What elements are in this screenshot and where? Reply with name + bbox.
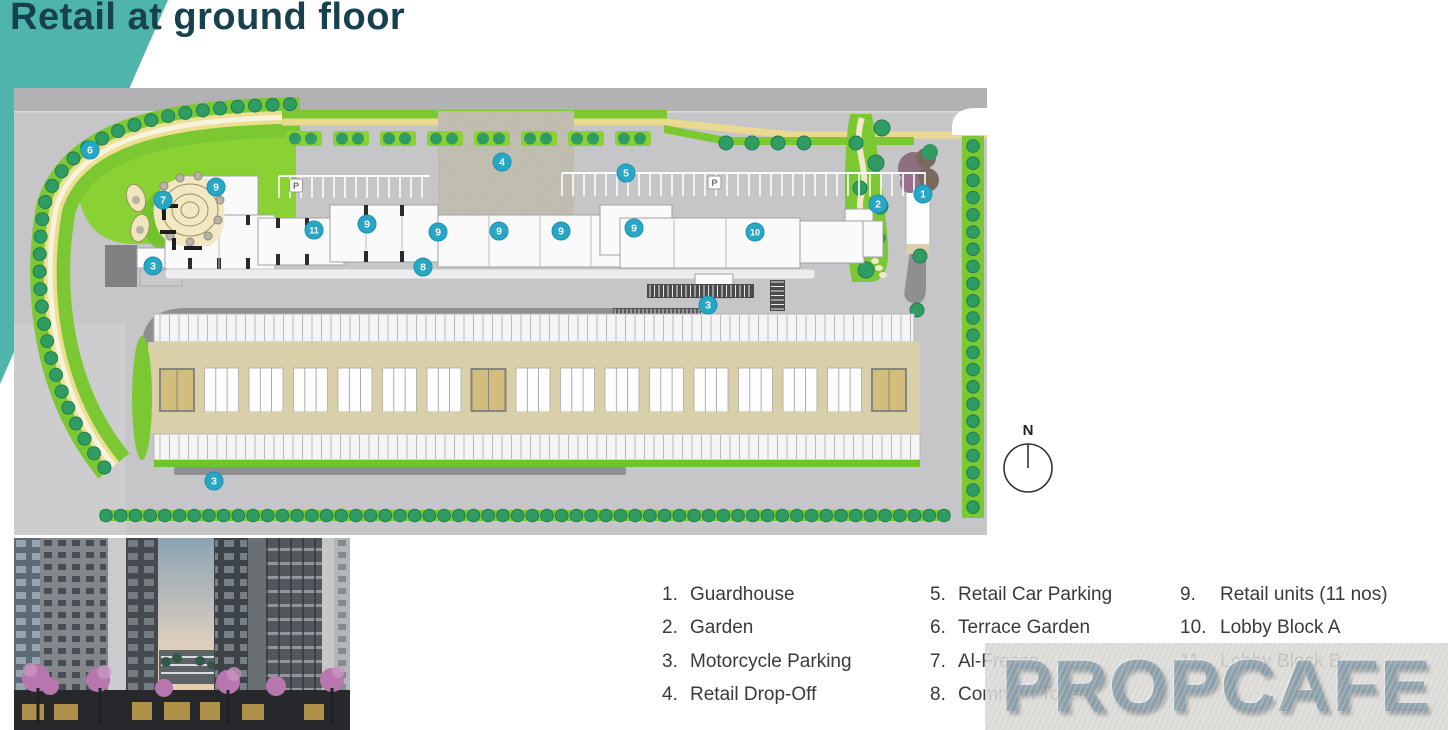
propcafe-watermark: PROPCAFE: [985, 643, 1448, 730]
plan-marker-number: 6: [87, 145, 93, 157]
legend-item-label: Retail units (11 nos): [1220, 584, 1388, 606]
legend-item-label: Guardhouse: [690, 584, 795, 606]
parking-structure: [132, 308, 920, 475]
plan-marker-9: 9: [552, 222, 570, 240]
legend-item: 5.Retail Car Parking: [930, 578, 1112, 612]
plan-marker-10: 10: [746, 223, 764, 241]
legend-item-label: Retail Car Parking: [958, 584, 1112, 606]
plan-marker-number: 10: [750, 228, 760, 238]
legend-item: 6.Terrace Garden: [930, 612, 1112, 646]
plan-marker-number: 9: [496, 226, 502, 238]
page-title: Retail at ground floor: [10, 0, 405, 39]
plan-marker-2: 2: [869, 195, 887, 213]
plan-marker-3: 3: [205, 472, 223, 490]
plan-marker-number: 11: [309, 226, 319, 236]
plan-marker-9: 9: [625, 219, 643, 237]
legend-item-number: 9.: [1180, 584, 1220, 606]
plan-marker-6: 6: [81, 141, 99, 159]
legend-item-label: Motorcycle Parking: [690, 651, 852, 673]
legend-item: 3.Motorcycle Parking: [662, 645, 852, 679]
plan-marker-9: 9: [429, 223, 447, 241]
legend-item-number: 1.: [662, 584, 690, 606]
plan-marker-number: 9: [364, 219, 370, 231]
legend-item: 10.Lobby Block A: [1180, 612, 1388, 646]
plan-marker-number: 4: [499, 157, 505, 169]
plan-marker-1: 1: [914, 185, 932, 203]
legend-item-label: Garden: [690, 617, 753, 639]
plan-marker-3: 3: [144, 257, 162, 275]
plan-marker-9: 9: [207, 178, 225, 196]
parking-sign-letter: P: [293, 181, 299, 191]
legend-item-label: Lobby Block A: [1220, 617, 1340, 639]
legend-column-1: 1.Guardhouse 2.Garden 3.Motorcycle Parki…: [662, 578, 852, 712]
watermark-text: PROPCAFE: [1001, 645, 1431, 729]
plan-marker-8: 8: [414, 258, 432, 276]
legend-item-number: 2.: [662, 617, 690, 639]
legend-item-number: 5.: [930, 584, 958, 606]
legend-item-number: 6.: [930, 617, 958, 639]
plan-marker-number: 9: [435, 227, 441, 239]
plan-top-road: [14, 88, 987, 111]
legend-item-number: 3.: [662, 651, 690, 673]
parking-sign-letter: P: [711, 178, 717, 188]
legend-item: 1.Guardhouse: [662, 578, 852, 612]
compass-n-label: N: [1023, 422, 1034, 439]
parking-sign-left: P: [290, 179, 303, 192]
legend-item-number: 7.: [930, 651, 958, 673]
legend-item-number: 8.: [930, 684, 958, 706]
site-plan: P P: [14, 88, 987, 535]
site-plan-drawing: P P: [14, 88, 987, 535]
legend-item: 9.Retail units (11 nos): [1180, 578, 1388, 612]
plan-marker-number: 3: [705, 300, 711, 312]
legend-item-number: 10.: [1180, 617, 1220, 639]
plan-marker-number: 8: [420, 262, 426, 274]
legend-item: 2.Garden: [662, 612, 852, 646]
plan-marker-number: 9: [213, 182, 219, 194]
project-rendering-photo: [14, 538, 350, 730]
plan-marker-number: 1: [920, 189, 926, 201]
plan-marker-3: 3: [699, 296, 717, 314]
legend-item-label: Retail Drop-Off: [690, 684, 816, 706]
plan-marker-4: 4: [493, 153, 511, 171]
legend-item-label: Terrace Garden: [958, 617, 1090, 639]
plan-marker-11: 11: [305, 221, 323, 239]
plan-marker-number: 2: [875, 199, 881, 211]
plan-marker-number: 9: [631, 223, 637, 235]
plan-marker-9: 9: [490, 222, 508, 240]
plan-marker-number: 3: [211, 476, 217, 488]
page: Retail at ground floor: [0, 0, 1448, 730]
plan-marker-9: 9: [358, 215, 376, 233]
plan-marker-number: 3: [150, 261, 156, 273]
north-compass: N: [1002, 418, 1054, 498]
plan-marker-number: 9: [558, 226, 564, 238]
plan-marker-number: 5: [623, 168, 629, 180]
plan-marker-7: 7: [154, 191, 172, 209]
legend-item: 4.Retail Drop-Off: [662, 679, 852, 713]
plan-marker-number: 7: [160, 195, 166, 207]
parking-sign-right: P: [708, 176, 721, 189]
plan-marker-5: 5: [617, 164, 635, 182]
legend-item-number: 4.: [662, 684, 690, 706]
